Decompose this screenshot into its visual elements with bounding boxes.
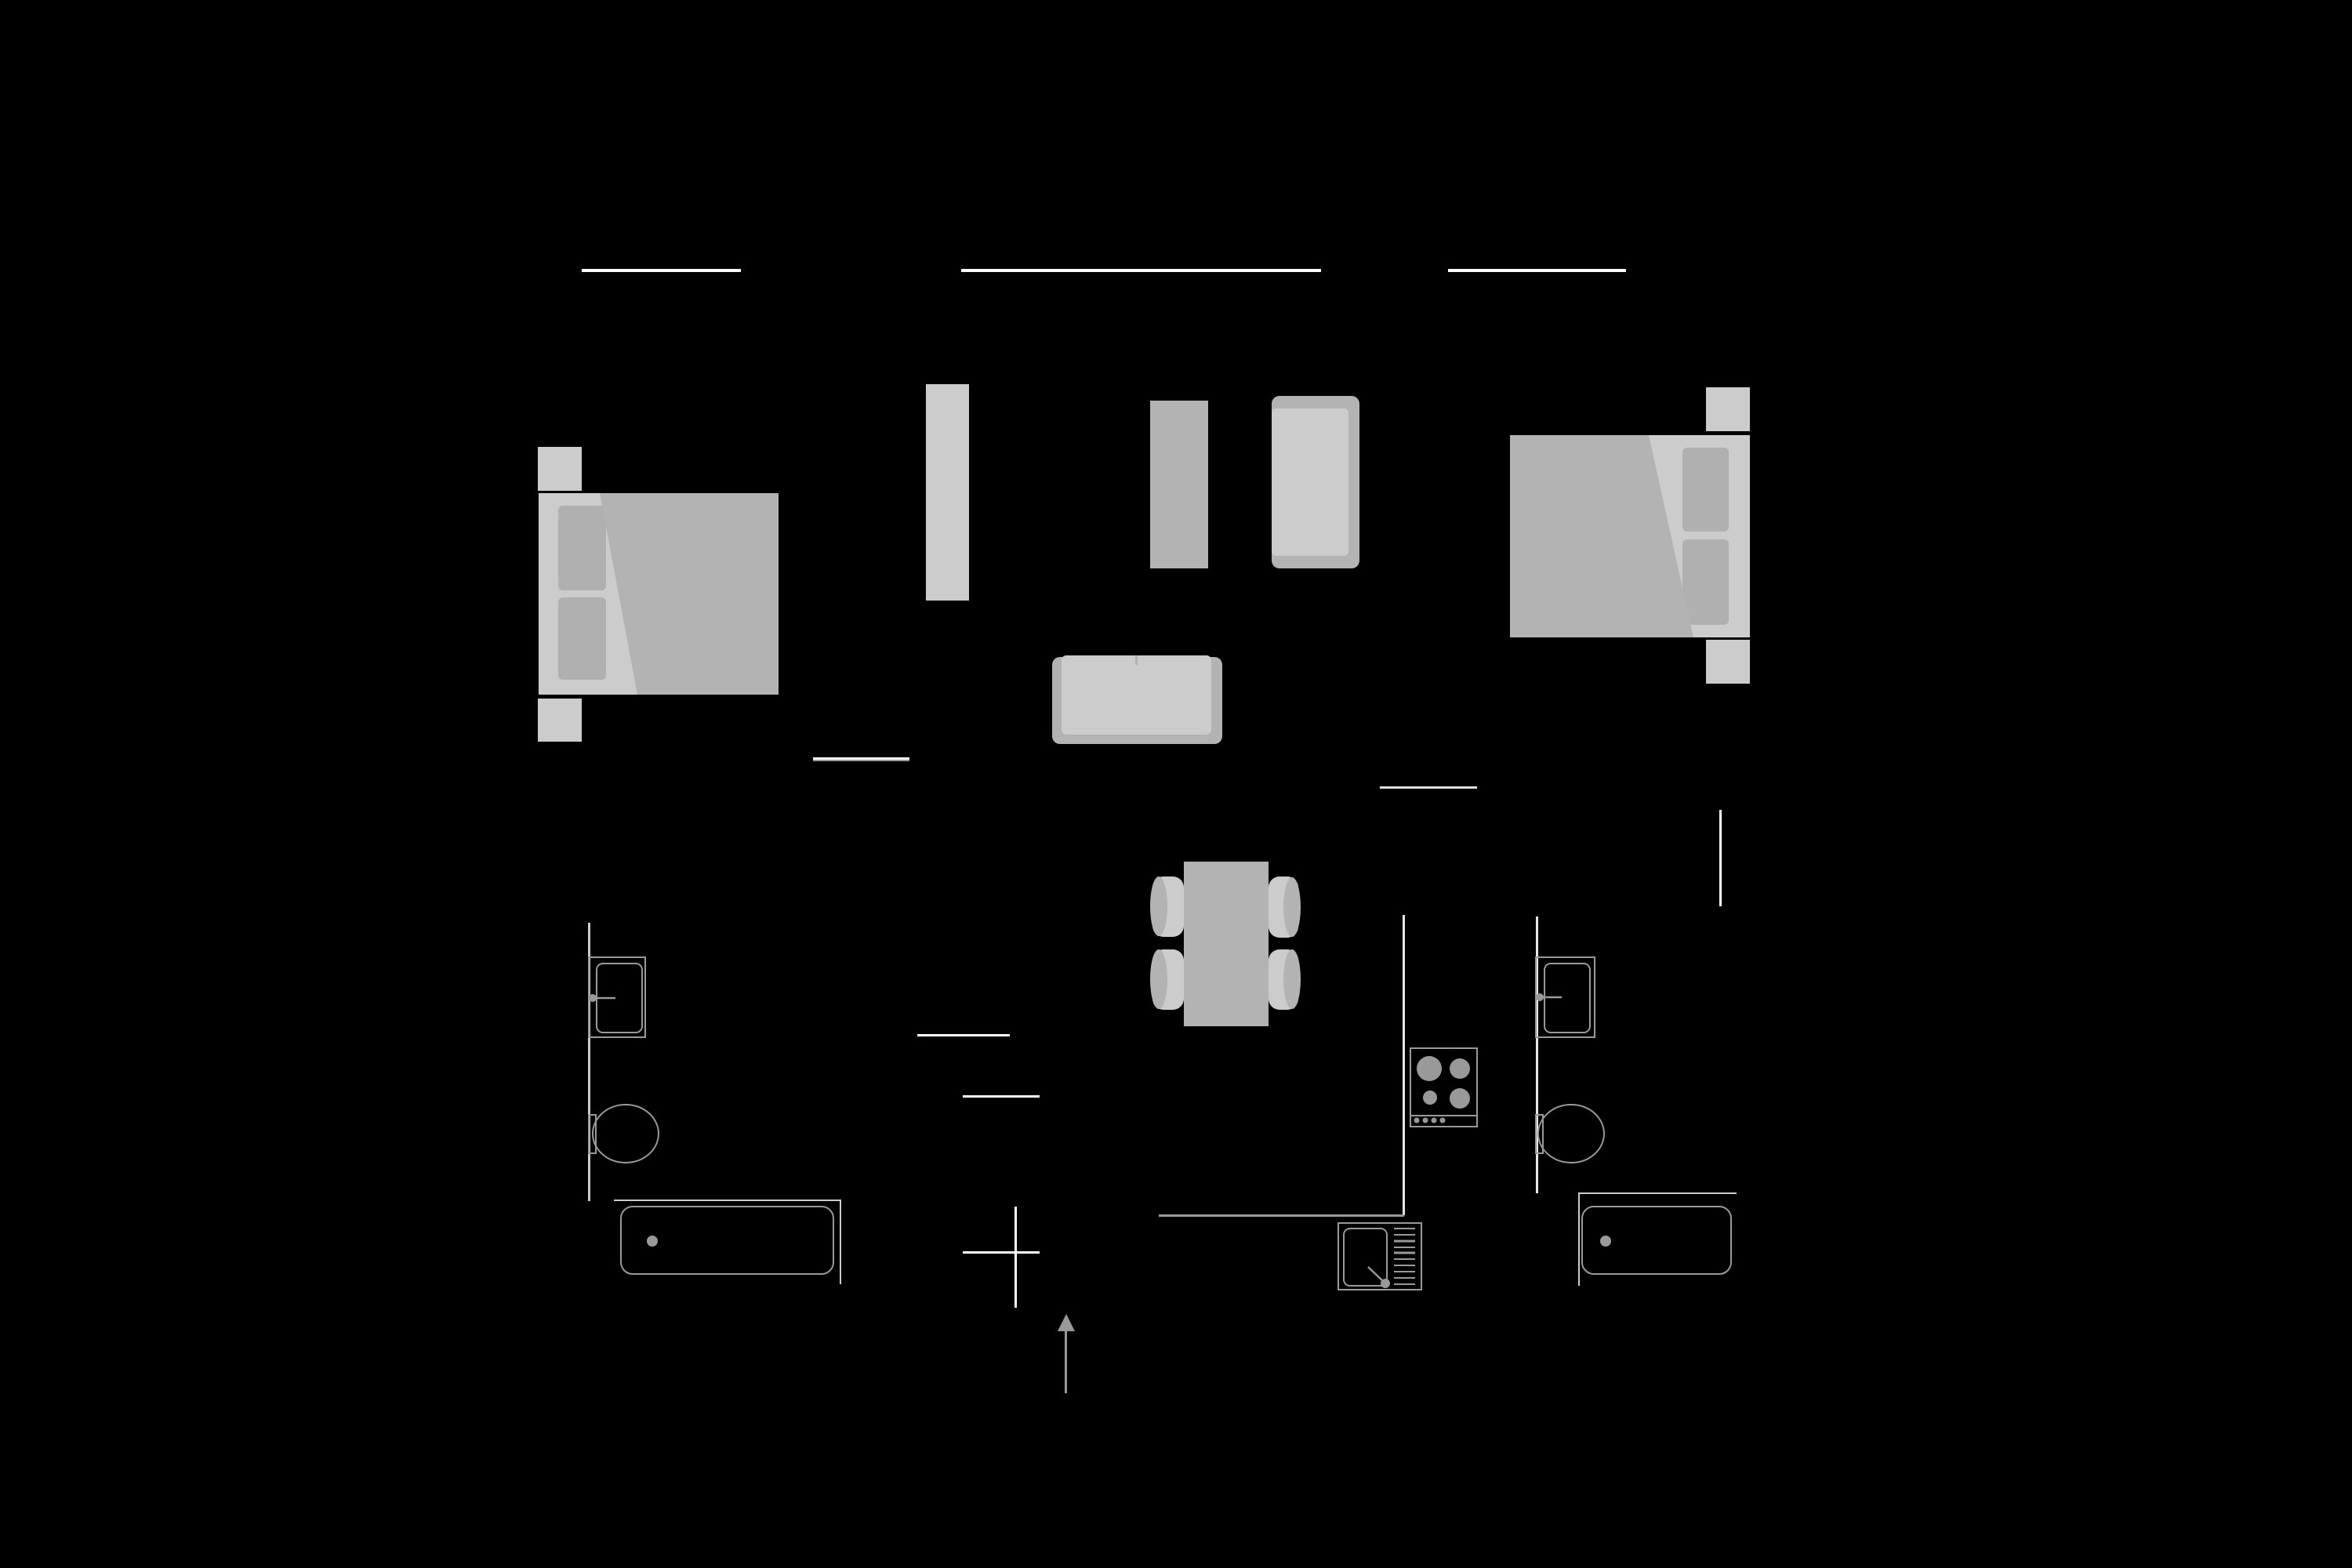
dining-chair-top-right-back xyxy=(1283,877,1301,937)
wall-kitchen-vertical xyxy=(1403,915,1405,1215)
kitchen-counter-line xyxy=(1159,1214,1404,1217)
nightstand-left-top xyxy=(538,447,582,491)
window-top-left xyxy=(582,269,741,272)
wall-segment-entry-upper xyxy=(917,1034,1010,1036)
bath-right-faucet-dot xyxy=(1536,993,1544,1001)
armchair-seat xyxy=(1272,408,1348,556)
hob-knob-4 xyxy=(1440,1118,1446,1123)
sofa-seat xyxy=(1062,655,1211,735)
dining-chair-top-left-back xyxy=(1150,877,1167,936)
nightstand-right-bottom xyxy=(1706,640,1750,684)
hob-burner-medium-bottom xyxy=(1450,1088,1470,1109)
wall-segment-entry-lower xyxy=(963,1095,1040,1098)
dining-chair-bottom-left-back xyxy=(1150,949,1167,1009)
kitchen-faucet-dot xyxy=(1381,1279,1390,1288)
hob-knob-1 xyxy=(1414,1118,1420,1123)
wall-segment-right-hall xyxy=(1380,786,1477,789)
hob-burner-large xyxy=(1417,1056,1442,1081)
hob-knob-3 xyxy=(1432,1118,1437,1123)
nightstand-left-bottom xyxy=(538,699,582,742)
bed-left-pillow-top xyxy=(558,506,606,590)
wall-tub-right-horizontal xyxy=(1578,1192,1737,1194)
wall-segment-left-hall-white xyxy=(813,757,909,760)
bath-left-toilet-bowl xyxy=(593,1105,659,1163)
bed-left-pillow-bottom xyxy=(558,597,606,680)
wall-right-vertical xyxy=(1719,810,1722,906)
sideboard xyxy=(1150,401,1208,568)
hob-burner-medium-top xyxy=(1450,1058,1470,1079)
wall-cross-vertical xyxy=(1014,1207,1017,1308)
bath-left-tub-drain xyxy=(647,1236,658,1247)
floor-plan-stage xyxy=(0,0,2352,1568)
hob-burner-small xyxy=(1423,1091,1437,1105)
wall-segment-left-hall-gray xyxy=(813,760,909,761)
kitchen-sink-unit xyxy=(1338,1223,1421,1290)
wall-tub-right-vertical xyxy=(1578,1192,1580,1286)
wall-cross-horizontal xyxy=(963,1251,1040,1254)
kitchen-sink-basin xyxy=(1344,1229,1387,1286)
dining-table xyxy=(1184,862,1269,1026)
hob-knob-2 xyxy=(1423,1118,1428,1123)
wall-tub-left-vertical xyxy=(840,1200,841,1284)
bath-right-tub-drain xyxy=(1600,1236,1611,1247)
bath-left-faucet-dot xyxy=(589,994,597,1002)
nightstand-right-top xyxy=(1706,387,1750,431)
dining-chair-bottom-right-back xyxy=(1283,949,1301,1009)
wall-tub-left-horizontal xyxy=(614,1200,841,1201)
bath-right-toilet-bowl xyxy=(1538,1105,1604,1163)
north-arrow-head xyxy=(1058,1314,1075,1331)
window-top-right xyxy=(1448,269,1626,272)
bed-right-pillow-top xyxy=(1682,448,1729,532)
floor-plan-canvas xyxy=(0,0,2352,1568)
bed-right-pillow-bottom xyxy=(1682,539,1729,625)
window-top-middle xyxy=(961,269,1321,272)
wardrobe xyxy=(926,384,969,601)
